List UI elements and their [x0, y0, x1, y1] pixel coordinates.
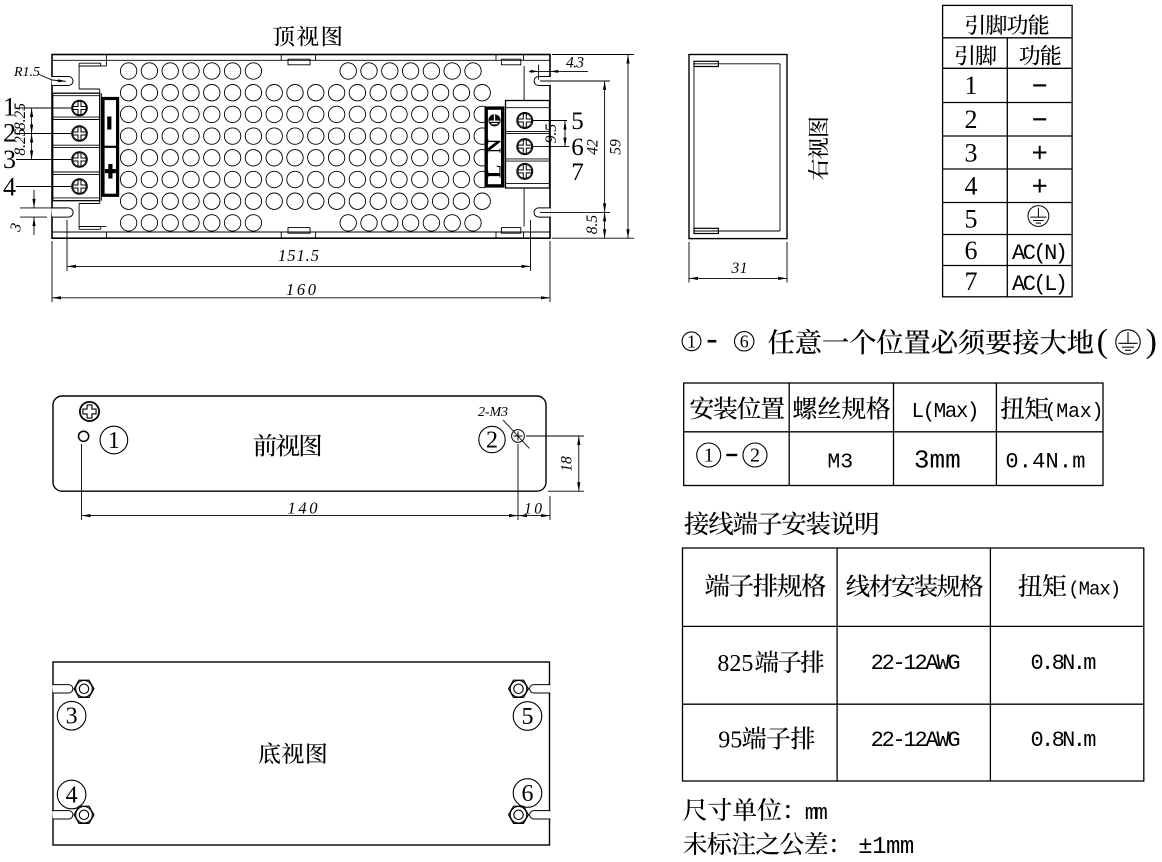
svg-text:(Max): (Max): [1045, 401, 1104, 424]
svg-text:4: 4: [965, 172, 978, 201]
svg-text:6: 6: [571, 134, 584, 161]
svg-text:(: (: [1097, 323, 1108, 360]
svg-text:1: 1: [108, 428, 120, 454]
svg-text:3: 3: [7, 221, 26, 234]
svg-text:M3: M3: [827, 451, 853, 475]
svg-text:18: 18: [559, 456, 576, 472]
svg-text:42: 42: [585, 139, 602, 155]
svg-text:(Max): (Max): [1068, 579, 1121, 601]
svg-text:2-M3: 2-M3: [478, 405, 508, 420]
svg-text:7: 7: [965, 267, 978, 296]
svg-text:0.4N.m: 0.4N.m: [1005, 450, 1085, 475]
svg-text:22-12AWG: 22-12AWG: [871, 651, 961, 676]
svg-text:160: 160: [286, 280, 317, 299]
svg-text:825: 825: [717, 651, 753, 677]
svg-text:3: 3: [66, 704, 78, 730]
svg-text:3mm: 3mm: [914, 446, 961, 476]
svg-text:5: 5: [965, 204, 978, 233]
svg-text:22-12AWG: 22-12AWG: [871, 728, 961, 753]
svg-text:95: 95: [718, 728, 742, 754]
svg-text:4: 4: [66, 783, 78, 809]
svg-text:6: 6: [965, 236, 978, 265]
svg-text:mm: mm: [805, 801, 828, 826]
svg-text:151.5: 151.5: [278, 246, 319, 265]
svg-text:59: 59: [608, 139, 625, 155]
svg-text:1: 1: [687, 331, 696, 351]
svg-text:0.8N.m: 0.8N.m: [1031, 728, 1097, 753]
svg-text:AC(N): AC(N): [1012, 241, 1068, 266]
svg-text:10: 10: [524, 501, 542, 518]
svg-text:N: N: [484, 138, 506, 153]
svg-text:L(Max): L(Max): [912, 401, 980, 424]
svg-text:1: 1: [965, 71, 978, 100]
svg-text:0.8N.m: 0.8N.m: [1031, 651, 1097, 676]
svg-text:9.5: 9.5: [543, 124, 560, 144]
svg-text:8.25: 8.25: [12, 103, 29, 130]
svg-text:7: 7: [571, 159, 584, 186]
svg-text:3: 3: [965, 138, 978, 167]
svg-text:4.3: 4.3: [566, 55, 584, 72]
svg-text:2: 2: [486, 428, 498, 454]
svg-text:2: 2: [750, 445, 760, 467]
svg-text:6: 6: [522, 781, 534, 807]
svg-text:): ): [1146, 323, 1157, 360]
svg-text:L: L: [484, 165, 506, 178]
svg-text:AC(L): AC(L): [1012, 272, 1068, 297]
svg-text:5: 5: [522, 704, 534, 730]
svg-text:4: 4: [3, 172, 16, 201]
svg-text:31: 31: [731, 260, 748, 277]
svg-text:R1.5: R1.5: [13, 65, 40, 80]
svg-text:±1mm: ±1mm: [858, 834, 914, 861]
svg-text:5: 5: [571, 108, 584, 135]
svg-text:2: 2: [965, 105, 978, 134]
svg-text:1: 1: [704, 445, 714, 467]
svg-text:140: 140: [288, 499, 319, 518]
svg-text:8.25: 8.25: [12, 128, 29, 155]
svg-text:6: 6: [740, 331, 749, 351]
svg-text:8.5: 8.5: [584, 215, 601, 235]
